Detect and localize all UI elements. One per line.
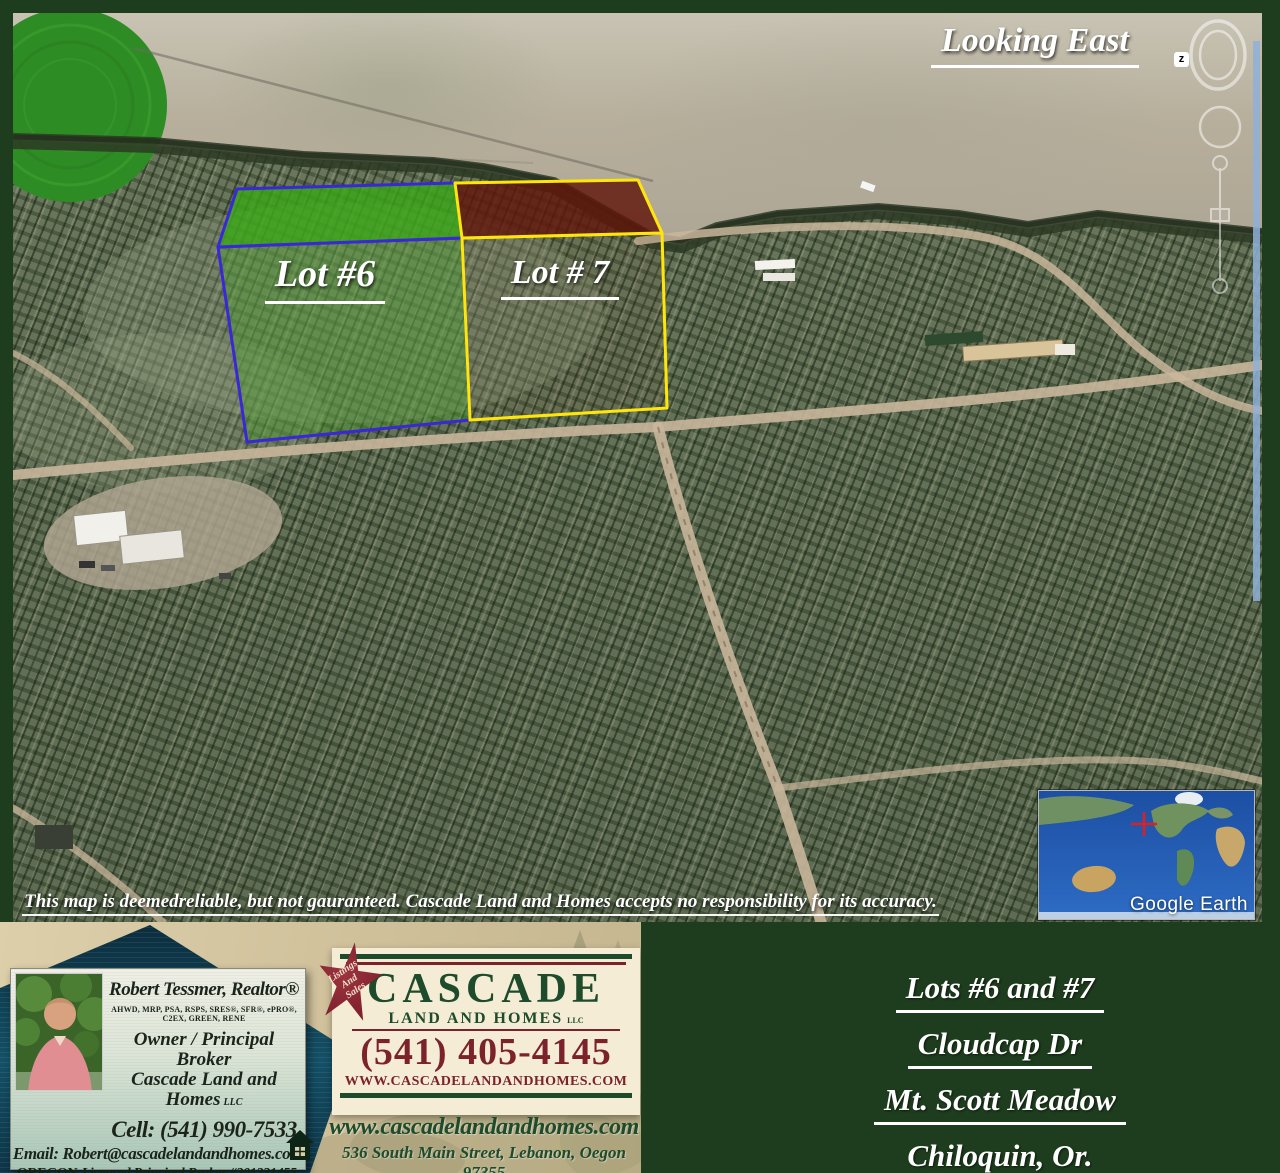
footer-branding-panel: Robert Tessmer, Realtor® AHWD, MRP, PSA,… [0,922,641,1173]
green-circle-field [13,13,167,202]
pan-control[interactable] [1200,107,1240,147]
listing-lots: Lots #6 and #7 [720,970,1280,1013]
compass-north-indicator[interactable]: z [1174,52,1189,67]
house-icon [284,1126,316,1169]
google-earth-watermark: Google Earth [1130,894,1248,916]
sign-rule-top-red [346,962,626,965]
office-phone: (541) 405-4145 [332,1033,640,1073]
realtor-email: Email: Robert@cascadelandandhomes.com [11,1144,305,1164]
listings-sales-star-badge: Listings And Sales [310,938,387,1030]
website-url: www.cascadelandandhomes.com [326,1114,641,1141]
sign-rule-bottom-green [340,1093,632,1098]
realtor-designations: AHWD, MRP, PSA, RSPS, SRES®, SFR®, ePRO®… [107,1005,301,1023]
realtor-company: Cascade Land and HomesLLC [107,1070,301,1110]
realtor-photo [15,973,103,1091]
realtor-cell-phone: Cell: (541) 990-7533 [107,1117,301,1143]
aerial-map: Looking East Lot #6 Lot # 7 This map is … [13,13,1262,922]
small-cabin [35,825,73,849]
realtor-business-card: Robert Tessmer, Realtor® AHWD, MRP, PSA,… [10,968,306,1170]
office-contact-block: www.cascadelandandhomes.com 536 South Ma… [326,1114,641,1173]
real-estate-flyer: Looking East Lot #6 Lot # 7 This map is … [0,0,1280,1173]
zoom-slider-handle[interactable] [1211,209,1229,221]
website-caps: WWW.CASCADELANDANDHOMES.COM [332,1074,640,1090]
lot7-label: Lot # 7 [480,254,640,300]
ge-nav-controls[interactable] [1191,21,1245,293]
zoom-out-button[interactable] [1213,279,1227,293]
listing-info-block: Lots #6 and #7 Cloudcap Dr Mt. Scott Mea… [720,946,1280,1173]
compass-ring-inner[interactable] [1200,31,1236,79]
listing-street: Cloudcap Dr [720,1026,1280,1069]
edge-sky-strip [1253,41,1260,601]
lot6-label: Lot #6 [240,252,410,304]
zoom-in-button[interactable] [1213,156,1227,170]
realtor-role: Owner / Principal Broker [107,1030,301,1070]
lot6-boundary [218,183,470,442]
world-overview-inset: Google Earth [1038,790,1255,920]
listing-city: Chiloquin, Or. [720,1138,1280,1173]
brand-subtitle: LAND AND HOMESLLC [332,1011,640,1027]
office-address: 536 South Main Street, Lebanon, Oegon 97… [326,1143,641,1173]
realtor-name: Robert Tessmer, Realtor® [107,979,301,1001]
lot7-boundary [455,180,667,420]
map-overlay-graphics [13,13,1262,922]
license-oregon: OREGONLicensed Principal Broker #2012314… [17,1166,299,1173]
left-homestead [37,462,290,604]
view-direction-label: Looking East [905,22,1165,68]
listing-subdivision: Mt. Scott Meadow [720,1082,1280,1125]
license-list: OREGONLicensed Principal Broker #2012314… [11,1164,305,1173]
map-disclaimer: This map is deemedreliable, but not gaur… [22,891,1042,916]
